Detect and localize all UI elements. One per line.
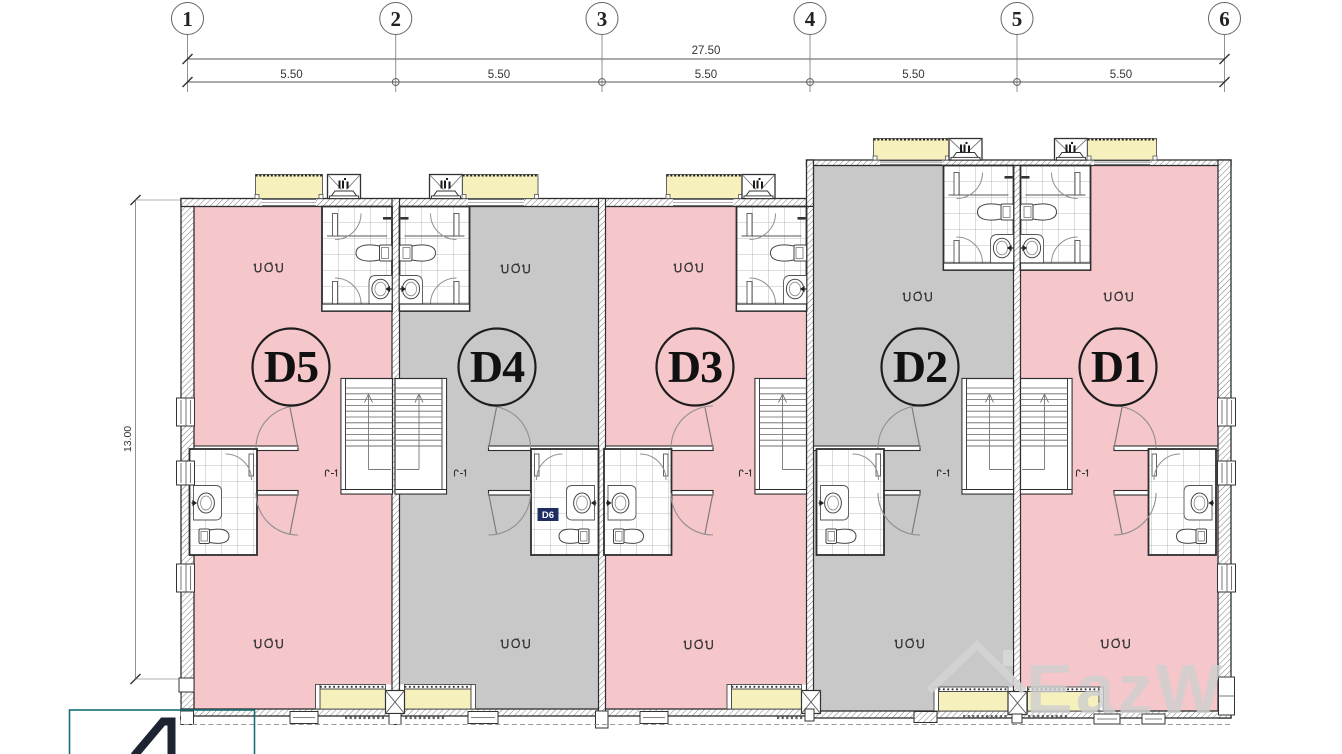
svg-text:6: 6	[1219, 7, 1230, 31]
svg-text:13.00: 13.00	[122, 426, 134, 452]
svg-text:5.50: 5.50	[1110, 69, 1132, 81]
svg-text:27.50: 27.50	[692, 45, 721, 57]
svg-text:D1: D1	[1091, 341, 1145, 392]
svg-text:D3: D3	[668, 341, 722, 392]
svg-text:5.50: 5.50	[488, 69, 510, 81]
svg-text:EazW: EazW	[1026, 650, 1225, 728]
svg-text:5.50: 5.50	[902, 69, 924, 81]
svg-text:5: 5	[1012, 7, 1023, 31]
svg-text:2: 2	[391, 7, 402, 31]
svg-text:D2: D2	[893, 341, 947, 392]
svg-text:5.50: 5.50	[280, 69, 302, 81]
svg-text:1: 1	[182, 7, 193, 31]
svg-text:5.50: 5.50	[695, 69, 717, 81]
svg-text:3: 3	[597, 7, 608, 31]
svg-text:D6: D6	[542, 510, 554, 521]
svg-text:D5: D5	[264, 341, 318, 392]
svg-text:D4: D4	[470, 341, 525, 392]
svg-text:4: 4	[805, 7, 816, 31]
